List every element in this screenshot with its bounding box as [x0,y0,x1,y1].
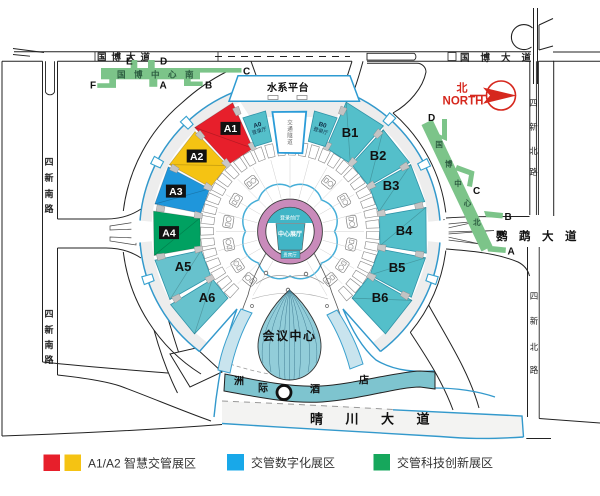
svg-text:北: 北 [473,217,481,227]
svg-text:路: 路 [529,167,538,177]
svg-text:C: C [473,186,480,197]
svg-text:B6: B6 [372,290,389,305]
svg-text:交: 交 [287,119,293,127]
svg-text:路: 路 [530,365,539,375]
svg-text:B2: B2 [370,148,387,163]
svg-text:隧: 隧 [287,132,293,140]
svg-text:道: 道 [287,138,293,146]
svg-text:交管数字化展区: 交管数字化展区 [251,455,335,470]
svg-text:A5: A5 [175,259,192,274]
svg-text:通: 通 [287,125,293,133]
svg-text:A: A [508,247,515,258]
svg-text:F: F [90,81,96,92]
svg-text:C: C [243,67,250,78]
svg-text:南: 南 [44,339,53,350]
svg-text:南: 南 [44,188,53,199]
svg-text:B4: B4 [396,223,413,238]
svg-text:洲: 洲 [234,376,244,388]
svg-text:四: 四 [529,98,538,108]
svg-text:店: 店 [359,374,369,387]
svg-text:博: 博 [445,159,453,169]
svg-text:贵宾厅: 贵宾厅 [283,252,297,259]
svg-text:新: 新 [530,316,539,326]
svg-text:会议中心: 会议中心 [262,328,316,343]
svg-text:中心展厅: 中心展厅 [278,230,302,238]
svg-text:B3: B3 [383,178,400,193]
svg-text:晴川大道: 晴川大道 [310,412,452,427]
svg-text:新: 新 [44,324,53,335]
svg-text:路: 路 [44,203,54,214]
svg-text:B5: B5 [389,260,406,275]
svg-text:新: 新 [44,172,53,183]
svg-text:新: 新 [529,122,538,132]
svg-text:交管科技创新展区: 交管科技创新展区 [397,455,493,470]
svg-text:心: 心 [464,198,472,208]
svg-text:国: 国 [435,139,443,149]
svg-text:B: B [205,81,212,92]
svg-text:B: B [505,212,512,223]
svg-text:A1: A1 [224,123,238,135]
svg-text:酒: 酒 [310,383,320,396]
svg-text:四: 四 [530,291,539,301]
svg-text:A1/A2 智慧交管展区: A1/A2 智慧交管展区 [88,456,196,471]
svg-text:四: 四 [44,309,53,319]
svg-text:A6: A6 [199,290,216,305]
svg-text:际: 际 [258,383,268,395]
svg-text:中: 中 [454,178,462,188]
svg-text:E: E [126,57,133,68]
svg-text:登录前厅: 登录前厅 [280,215,300,222]
svg-text:A3: A3 [169,186,183,198]
svg-text:B1: B1 [342,125,359,140]
svg-text:D: D [160,57,167,68]
svg-text:北: 北 [457,81,468,95]
svg-text:A4: A4 [162,227,176,239]
svg-text:NORTH: NORTH [443,96,484,108]
svg-text:北: 北 [529,146,538,156]
svg-text:水系平台: 水系平台 [266,81,309,94]
svg-text:鹦鹉大道: 鹦鹉大道 [496,229,588,243]
svg-text:D: D [428,113,435,124]
svg-text:北: 北 [530,342,539,352]
svg-text:国博中心南: 国博中心南 [117,70,202,80]
svg-text:四: 四 [44,157,53,167]
svg-text:A2: A2 [190,151,204,163]
svg-text:A: A [160,81,167,92]
